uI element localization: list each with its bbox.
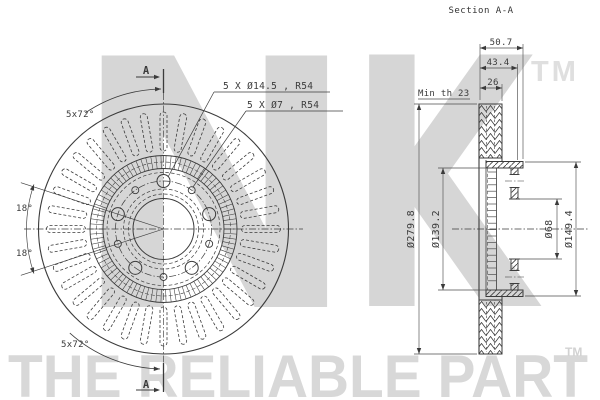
angle-lower-label: 18° [16,249,33,259]
section-marker-bottom: A [143,379,150,391]
mounting-plate-section [511,259,518,271]
dim-overall-width-label: 50.7 [490,38,513,48]
dim-min-thickness-label: Min th 23 [418,89,469,99]
hole-spacing-bottom-label: 5x72° [61,340,90,350]
dim-bore-diameter-label: Ø68 [543,220,555,239]
angle-upper-label: 18° [16,204,33,214]
mounting-plate-section [511,168,518,175]
hat-wall-bottom [486,290,523,297]
dim-ring-diameter-label: Ø139.2 [430,210,442,248]
technical-drawing-page: N K TM THE RELIABLE PART TM Section A-A … [0,0,600,400]
mounting-plate-section [511,284,518,291]
hat-wall-top [486,162,523,169]
dim-hat-depth-label: 43.4 [487,58,510,68]
small-holes-callout: 5 X Ø7 , R54 [247,100,319,111]
dim-thickness-label: 26 [487,78,498,88]
trademark-symbol: TM [531,56,579,88]
dim-outer-diameter-label: Ø279.8 [405,210,417,248]
section-marker-top: A [143,65,150,77]
brake-disc-technical-drawing: N K TM THE RELIABLE PART TM Section A-A … [0,0,600,400]
slogan-trademark-symbol: TM [565,345,582,359]
mounting-plate-section [511,188,518,200]
hole-spacing-top-label: 5x72° [66,110,95,120]
friction-ring-bottom [479,300,502,354]
section-title: Section A-A [448,6,513,16]
large-holes-callout: 5 X Ø14.5 , R54 [223,81,313,92]
friction-ring-top [479,104,502,158]
dim-hat-diameter-label: Ø149.4 [563,210,575,248]
